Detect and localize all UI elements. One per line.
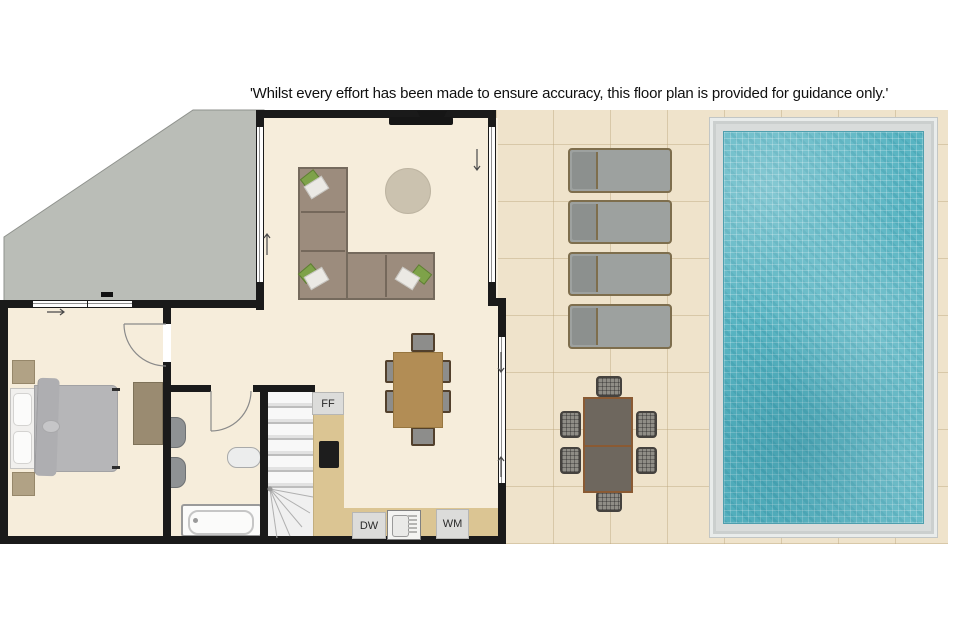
kitchen-sink (387, 510, 421, 540)
bathtub-inner (188, 510, 254, 535)
dining-chair (411, 333, 435, 352)
dishwasher-box: DW (352, 512, 386, 539)
lounger-headrest (572, 152, 598, 189)
bathtub-drain (193, 518, 198, 523)
nightstand (12, 360, 35, 384)
wall-top (256, 110, 496, 118)
sink-basin (392, 515, 409, 537)
sink-drainer (408, 515, 417, 535)
dishwasher-label: DW (360, 520, 378, 532)
wall-bathroom-top-left (163, 385, 211, 392)
outdoor-chair (596, 376, 622, 397)
washing-machine-box: WM (436, 509, 469, 539)
terrace-area (4, 110, 264, 306)
dining-table (393, 352, 443, 428)
bedroom-window (88, 301, 132, 307)
lounger-headrest (572, 308, 598, 345)
living-window-east-lower (489, 204, 495, 282)
outdoor-chair (636, 447, 657, 474)
sun-lounger (568, 148, 672, 193)
staircase-winder (268, 488, 313, 538)
outdoor-chair (596, 491, 622, 512)
outdoor-chair (636, 411, 657, 438)
sun-lounger (568, 304, 672, 349)
sofa-seam (301, 211, 345, 213)
wall-hall-upper (163, 300, 171, 324)
washing-machine-label: WM (443, 518, 463, 530)
sofa-seam (385, 255, 387, 297)
nightstand (12, 472, 35, 496)
bathtub (181, 504, 262, 537)
fridge-freezer-label: FF (321, 398, 334, 410)
round-rug (385, 168, 431, 214)
kitchen-counter-vertical (313, 414, 344, 538)
outdoor-chair (560, 447, 581, 474)
wall-bottom (0, 536, 506, 544)
lounger-headrest (572, 204, 598, 240)
cooktop (319, 441, 339, 468)
bedroom-window (33, 301, 87, 307)
pillow (13, 393, 32, 426)
sun-lounger (568, 200, 672, 244)
tv (389, 117, 453, 125)
table-divider (585, 445, 631, 447)
bed-frame-corner (112, 466, 120, 469)
staircase-treads (268, 392, 313, 488)
outdoor-dining-table (583, 397, 633, 493)
wall-bathroom-right (260, 385, 268, 536)
bed-frame-corner (112, 388, 120, 391)
hall-floor (171, 306, 264, 392)
outdoor-chair (560, 411, 581, 438)
floor-plan-canvas: 'Whilst every effort has been made to en… (0, 0, 960, 640)
dining-window-east (499, 337, 505, 483)
dining-chair (411, 427, 435, 446)
wall-west (0, 300, 8, 544)
sofa-seam (301, 250, 345, 252)
fridge-freezer-box: FF (312, 392, 344, 415)
pillow (13, 431, 32, 464)
bathroom-sink (227, 447, 261, 468)
living-window-west-lower (257, 204, 263, 282)
disclaimer-text: 'Whilst every effort has been made to en… (250, 85, 888, 102)
lounger-headrest (572, 256, 598, 292)
pool-water (723, 131, 924, 524)
living-window-east-upper (489, 127, 495, 204)
sun-lounger (568, 252, 672, 296)
living-window-west-upper (257, 127, 263, 204)
wardrobe (133, 382, 163, 445)
wall-vent-marker (101, 292, 113, 297)
bed-cushion (42, 420, 60, 433)
